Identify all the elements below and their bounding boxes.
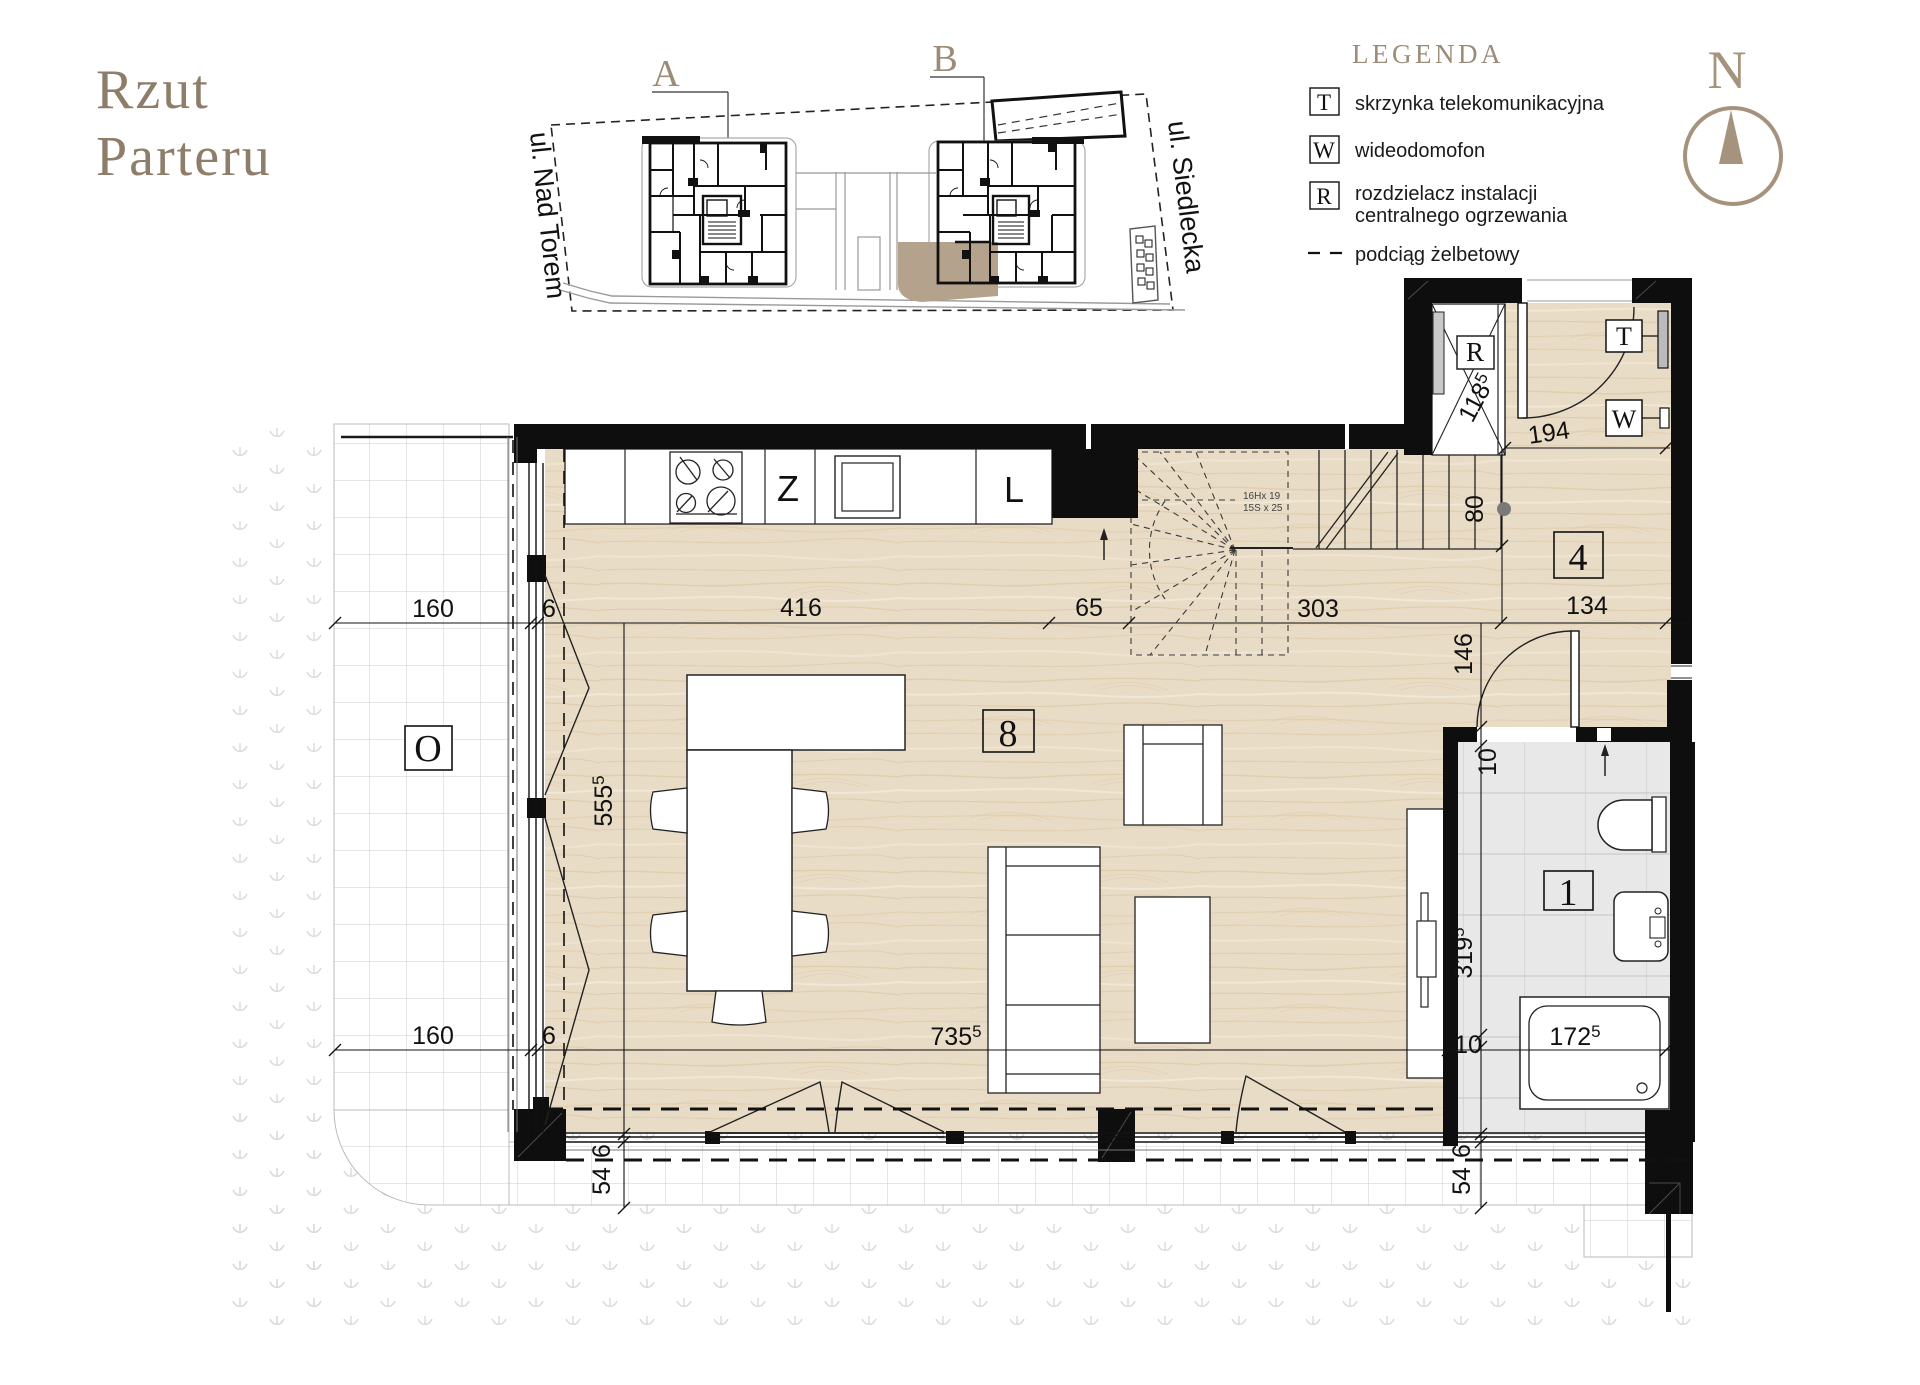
svg-text:160: 160 [412, 1022, 454, 1050]
svg-text:rozdzielacz instalacji: rozdzielacz instalacji [1355, 183, 1537, 205]
svg-text:54: 54 [1448, 1167, 1476, 1195]
svg-text:160: 160 [412, 595, 454, 623]
svg-text:10: 10 [1474, 748, 1502, 776]
svg-text:303: 303 [1297, 595, 1339, 623]
svg-text:T: T [1317, 90, 1331, 115]
svg-text:L: L [1004, 469, 1024, 510]
svg-text:15S x 25: 15S x 25 [1243, 503, 1283, 514]
svg-text:LEGENDA: LEGENDA [1352, 39, 1504, 69]
svg-text:N: N [1708, 40, 1747, 100]
svg-text:54: 54 [588, 1167, 616, 1195]
svg-text:wideodomofon: wideodomofon [1354, 140, 1485, 162]
svg-text:4: 4 [1569, 537, 1588, 579]
svg-text:194: 194 [1526, 416, 1571, 450]
svg-text:8: 8 [999, 713, 1018, 755]
svg-text:R: R [1316, 184, 1332, 209]
svg-text:T: T [1616, 322, 1632, 351]
svg-text:80: 80 [1461, 495, 1489, 523]
svg-text:skrzynka telekomunikacyjna: skrzynka telekomunikacyjna [1355, 93, 1605, 115]
svg-text:O: O [414, 728, 441, 770]
svg-text:A: A [652, 53, 680, 95]
svg-text:Rzut: Rzut [96, 59, 210, 121]
svg-text:134: 134 [1566, 592, 1608, 620]
svg-text:65: 65 [1075, 594, 1103, 622]
svg-text:Z: Z [777, 468, 799, 509]
svg-text:1: 1 [1559, 872, 1578, 914]
svg-text:podciąg żelbetowy: podciąg żelbetowy [1355, 244, 1520, 266]
svg-text:Parteru: Parteru [96, 126, 272, 188]
svg-text:centralnego ogrzewania: centralnego ogrzewania [1355, 205, 1568, 227]
svg-text:W: W [1313, 138, 1335, 163]
svg-text:R: R [1466, 337, 1484, 367]
svg-text:6: 6 [1448, 1144, 1476, 1158]
svg-text:B: B [932, 38, 957, 80]
svg-text:10: 10 [1454, 1031, 1482, 1059]
svg-text:416: 416 [780, 594, 822, 622]
svg-text:6: 6 [542, 1022, 556, 1050]
svg-text:6: 6 [588, 1144, 616, 1158]
svg-text:W: W [1612, 405, 1637, 434]
svg-text:16Hx 19: 16Hx 19 [1243, 491, 1281, 502]
svg-text:6: 6 [542, 595, 556, 623]
svg-text:146: 146 [1450, 633, 1478, 675]
